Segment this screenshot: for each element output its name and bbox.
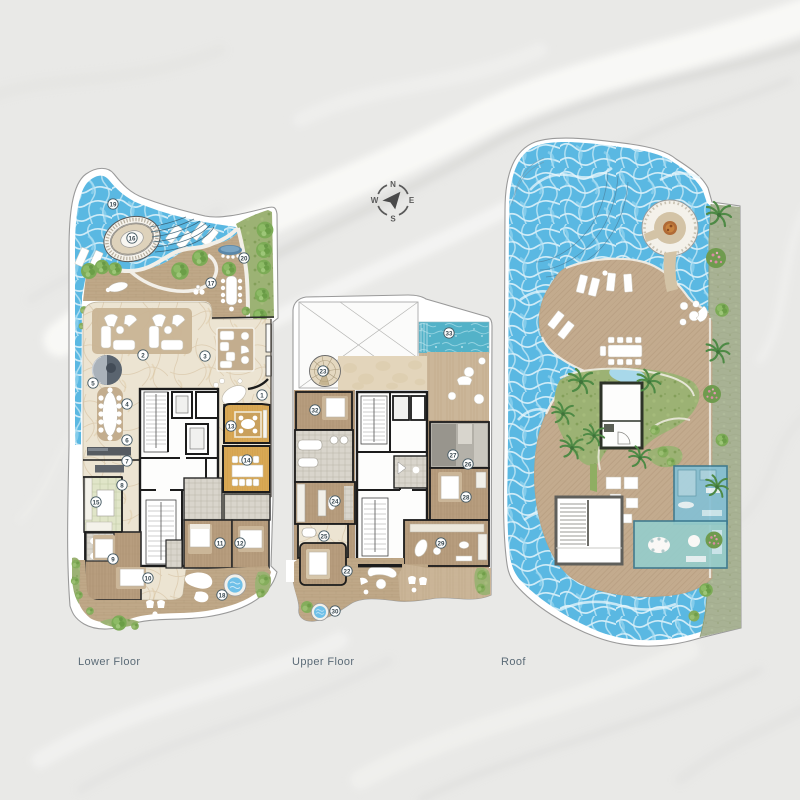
- svg-text:11: 11: [217, 540, 224, 547]
- svg-text:N: N: [390, 180, 396, 189]
- svg-text:24: 24: [332, 498, 339, 505]
- svg-text:14: 14: [244, 457, 251, 464]
- svg-text:W: W: [371, 196, 379, 205]
- svg-text:22: 22: [344, 568, 351, 575]
- svg-text:13: 13: [228, 423, 235, 430]
- svg-text:S: S: [390, 215, 396, 224]
- svg-text:Lower Floor: Lower Floor: [78, 656, 140, 668]
- svg-text:17: 17: [208, 280, 215, 287]
- svg-text:Roof: Roof: [501, 656, 526, 668]
- svg-text:12: 12: [237, 540, 244, 547]
- svg-text:5: 5: [91, 380, 95, 387]
- svg-text:30: 30: [332, 608, 339, 615]
- svg-text:33: 33: [446, 330, 453, 337]
- svg-text:15: 15: [93, 499, 100, 506]
- svg-text:6: 6: [125, 437, 129, 444]
- svg-text:19: 19: [110, 201, 117, 208]
- svg-text:2: 2: [141, 352, 145, 359]
- svg-text:8: 8: [120, 482, 124, 489]
- svg-text:18: 18: [219, 592, 226, 599]
- svg-text:Upper Floor: Upper Floor: [292, 656, 354, 668]
- svg-text:9: 9: [111, 556, 115, 563]
- svg-text:28: 28: [463, 494, 470, 501]
- svg-text:7: 7: [125, 458, 129, 465]
- svg-text:10: 10: [145, 575, 152, 582]
- svg-text:20: 20: [241, 255, 248, 262]
- svg-text:E: E: [409, 196, 415, 205]
- svg-text:25: 25: [321, 533, 328, 540]
- svg-text:16: 16: [129, 235, 136, 242]
- svg-text:32: 32: [312, 407, 319, 414]
- svg-text:26: 26: [465, 461, 472, 468]
- svg-text:3: 3: [203, 353, 207, 360]
- svg-text:1: 1: [260, 392, 264, 399]
- svg-text:29: 29: [438, 540, 445, 547]
- svg-text:23: 23: [320, 368, 327, 375]
- svg-text:4: 4: [125, 401, 129, 408]
- svg-text:27: 27: [450, 452, 457, 459]
